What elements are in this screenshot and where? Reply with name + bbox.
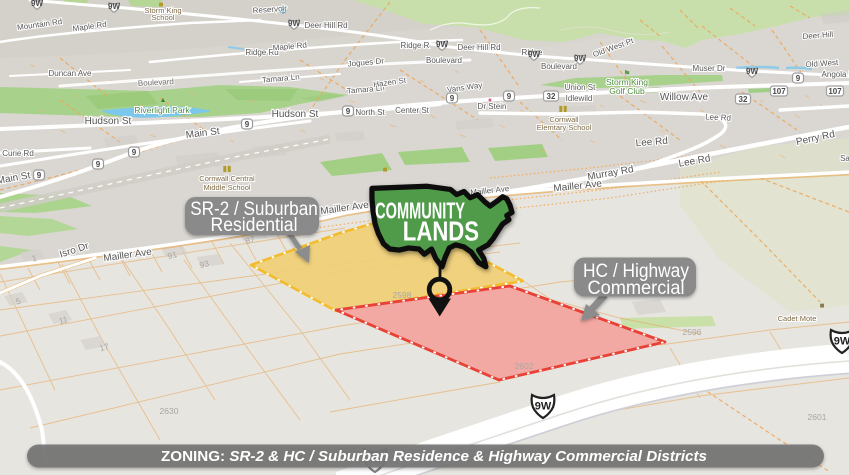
svg-text:Cornwall Central: Cornwall Central (199, 174, 255, 183)
svg-text:Curie Rd: Curie Rd (2, 149, 34, 158)
svg-text:▲: ▲ (160, 97, 167, 104)
svg-text:Idlewild: Idlewild (566, 94, 593, 103)
svg-text:■: ■ (820, 301, 825, 310)
svg-text:▮▮: ▮▮ (223, 164, 232, 173)
svg-text:Willow Ave: Willow Ave (660, 92, 709, 103)
svg-text:Middle School: Middle School (203, 183, 250, 192)
svg-text:2601: 2601 (808, 412, 827, 422)
svg-text:LANDS: LANDS (403, 215, 479, 247)
svg-text:Sa: Sa (840, 154, 849, 163)
svg-text:Deer Hill Rd: Deer Hill Rd (304, 21, 347, 30)
svg-text:⚑: ⚑ (623, 69, 630, 78)
svg-text:North St: North St (355, 108, 385, 117)
svg-text:Commercial: Commercial (588, 278, 685, 299)
svg-text:Cadet Mote: Cadet Mote (778, 314, 817, 323)
svg-text:⚓: ⚓ (279, 5, 288, 14)
svg-text:Boulevard: Boulevard (138, 77, 174, 88)
svg-text:2630: 2630 (160, 406, 179, 416)
svg-text:Muser Dr: Muser Dr (693, 64, 726, 73)
svg-text:Center St: Center St (395, 106, 430, 115)
svg-text:Residential: Residential (211, 215, 298, 236)
svg-text:Riverlight Park: Riverlight Park (134, 105, 190, 115)
svg-text:Deer Hill Rd: Deer Hill Rd (457, 43, 500, 52)
svg-text:2598: 2598 (393, 290, 412, 300)
svg-text:Dr Stein: Dr Stein (478, 102, 507, 111)
svg-text:2596: 2596 (683, 327, 702, 337)
svg-text:School: School (152, 13, 175, 22)
svg-text:Boulevard: Boulevard (541, 62, 577, 71)
svg-text:■: ■ (159, 0, 164, 9)
svg-text:Ridge R: Ridge R (401, 41, 430, 50)
svg-text:Hudson St: Hudson St (272, 109, 319, 120)
svg-text:Elemtary School: Elemtary School (537, 123, 592, 132)
svg-text:Union St: Union St (565, 83, 596, 92)
svg-text:Lee Rd: Lee Rd (705, 112, 731, 122)
svg-text:Hudson St: Hudson St (85, 116, 132, 127)
svg-text:■: ■ (383, 165, 388, 174)
svg-text:2602: 2602 (515, 361, 534, 371)
svg-text:Golf Club: Golf Club (609, 86, 645, 96)
svg-text:Boulevard: Boulevard (426, 56, 462, 65)
svg-text:▮▮: ▮▮ (559, 104, 568, 113)
svg-text:Angola R: Angola R (822, 70, 849, 79)
svg-text:ZONING: SR-2 & HC / Suburban R: ZONING: SR-2 & HC / Suburban Residence &… (161, 448, 707, 465)
svg-text:Duncan Ave: Duncan Ave (49, 69, 93, 78)
